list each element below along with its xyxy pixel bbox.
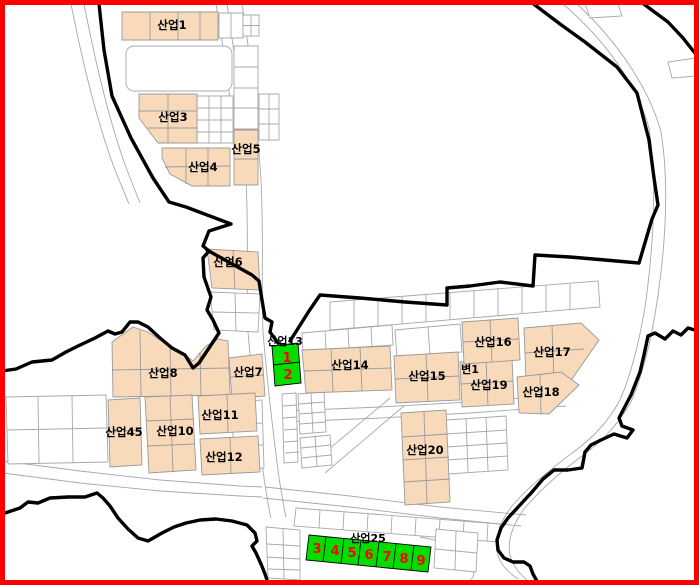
label-saneop-3: 산업3 — [158, 110, 187, 124]
parcel-map: 산업1 산업3 산업4 산업5 산업6 산업7 산업8 산업45 산업10 산업… — [0, 0, 699, 585]
label-saneop-19: 산업19 — [470, 378, 507, 392]
label-saneop-25: 산업25 — [350, 531, 386, 545]
label-saneop-17: 산업17 — [533, 345, 570, 359]
parcel-number-4: 4 — [330, 544, 339, 559]
label-saneop-20: 산업20 — [406, 443, 443, 457]
label-saneop-8: 산업8 — [148, 366, 177, 380]
parcel-map-canvas: 산업1 산업3 산업4 산업5 산업6 산업7 산업8 산업45 산업10 산업… — [0, 0, 699, 585]
block-saneop-5 — [234, 130, 258, 185]
label-saneop-18: 산업18 — [522, 385, 559, 399]
label-byeon-1: 변1 — [461, 362, 479, 376]
parcel-number-7: 7 — [382, 550, 391, 565]
label-saneop-4: 산업4 — [188, 160, 217, 174]
label-saneop-10: 산업10 — [156, 424, 193, 438]
parcel-number-3: 3 — [312, 542, 321, 557]
label-saneop-1: 산업1 — [157, 18, 186, 32]
label-saneop-7: 산업7 — [233, 365, 262, 379]
label-saneop-45: 산업45 — [105, 425, 142, 439]
parcel-number-1: 1 — [282, 351, 291, 366]
parcel-number-6: 6 — [364, 548, 373, 563]
label-saneop-14: 산업14 — [331, 358, 368, 372]
label-saneop-12: 산업12 — [205, 450, 242, 464]
label-saneop-15: 산업15 — [408, 369, 445, 383]
parcel-number-5: 5 — [347, 546, 356, 561]
parcel-number-8: 8 — [399, 552, 408, 567]
label-saneop-11: 산업11 — [201, 408, 238, 422]
label-saneop-5: 산업5 — [231, 142, 260, 156]
parcel-number-2: 2 — [283, 368, 292, 383]
label-saneop-13: 산업13 — [267, 334, 303, 348]
label-saneop-6: 산업6 — [213, 255, 242, 269]
label-saneop-16: 산업16 — [474, 335, 511, 349]
parcel-number-9: 9 — [416, 554, 425, 569]
